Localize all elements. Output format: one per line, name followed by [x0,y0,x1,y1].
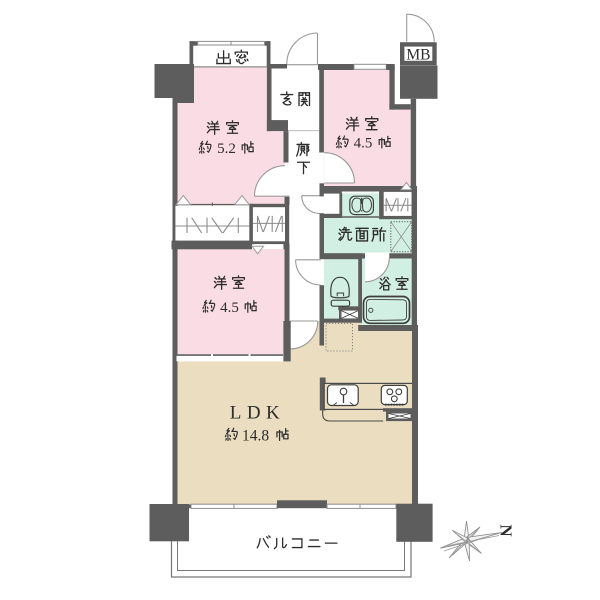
svg-text:5.2: 5.2 [217,141,236,157]
svg-text:MB: MB [406,47,430,64]
svg-text:N: N [496,524,515,537]
svg-text:4.5: 4.5 [354,136,373,152]
svg-text:4.5: 4.5 [220,300,239,316]
svg-text:LDK: LDK [230,402,286,423]
svg-text:14.8: 14.8 [242,427,269,444]
